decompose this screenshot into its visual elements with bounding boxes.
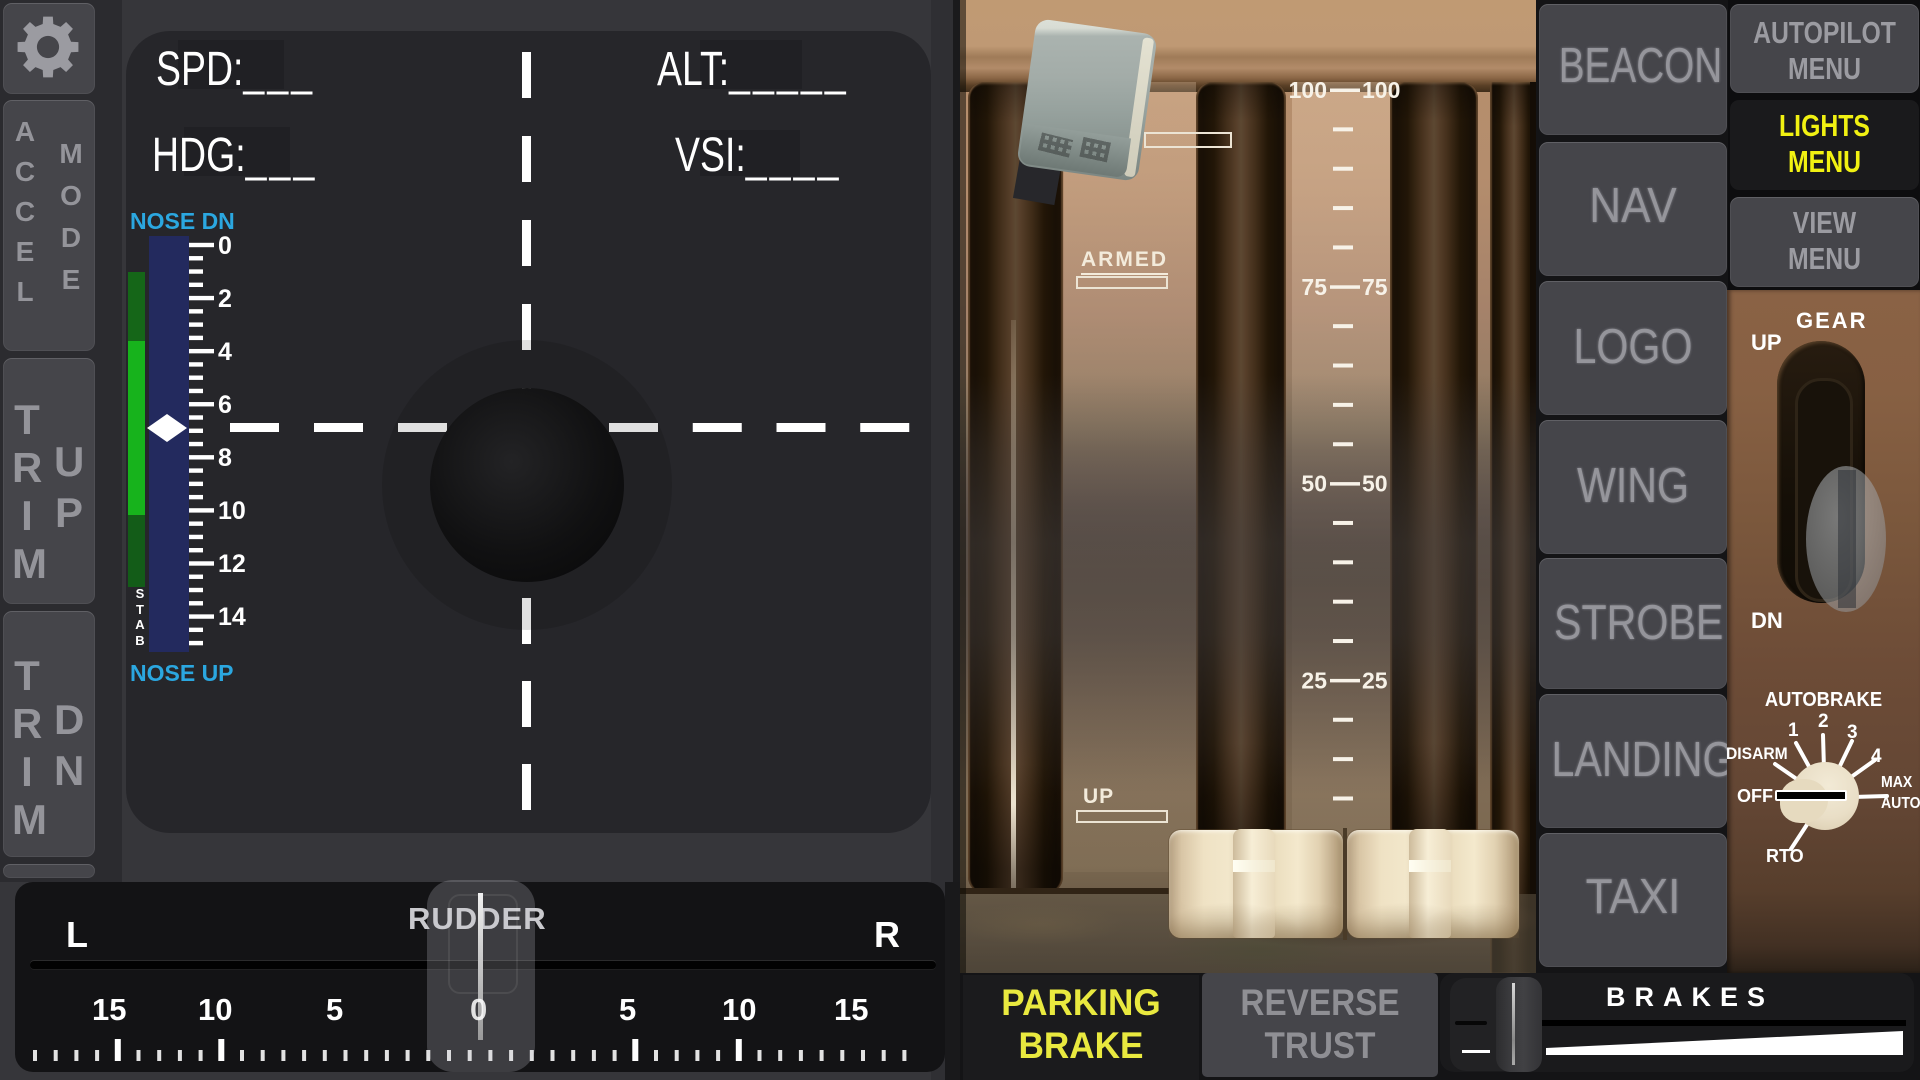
svg-text:25: 25 [1301,667,1327,693]
svg-text:50: 50 [1301,471,1327,497]
svg-text:25: 25 [1362,667,1388,693]
svg-text:100: 100 [1362,77,1400,103]
svg-text:100: 100 [1289,77,1327,103]
svg-text:50: 50 [1362,471,1388,497]
svg-text:75: 75 [1362,274,1388,300]
svg-text:75: 75 [1301,274,1327,300]
